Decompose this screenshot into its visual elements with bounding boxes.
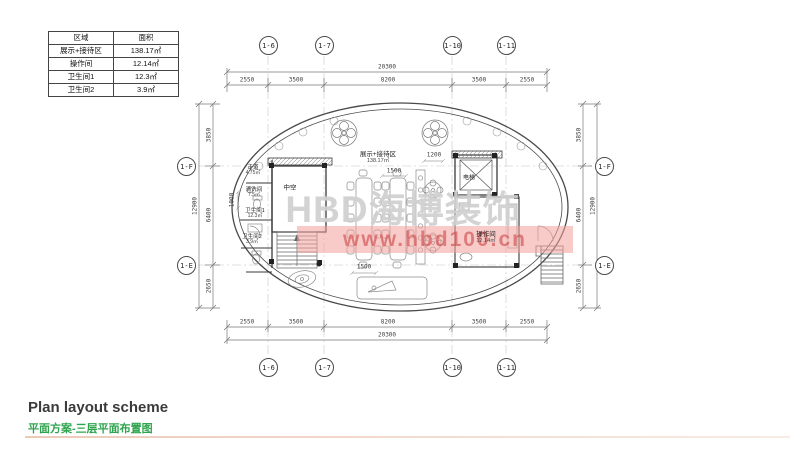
grid-bubble-bottom-1-11: 1-11 — [497, 358, 516, 377]
dim-label: 2550 — [240, 319, 254, 326]
round-sofa — [331, 120, 357, 146]
bubble-label: 1-6 — [262, 364, 275, 372]
dim-label: 8200 — [381, 319, 395, 326]
table-row: 卫生间1 12.3㎡ — [49, 71, 179, 84]
bubble-label: 1-10 — [444, 42, 461, 50]
bubble-label: 1-7 — [318, 42, 331, 50]
dim-label: 2550 — [240, 77, 254, 84]
dim-label: 6400 — [576, 208, 583, 222]
dim-label: 1000 — [229, 193, 236, 207]
bubble-label: 1-F — [598, 163, 611, 171]
room-area: 3.9㎡ — [242, 240, 262, 246]
room-name: 电梯 — [463, 176, 475, 183]
room-label-elevator: 电梯 — [463, 176, 475, 183]
grid-bubble-top-1-7: 1-7 — [315, 36, 334, 55]
dim-label-total: 12900 — [192, 197, 199, 215]
header-area: 面积 — [114, 32, 179, 45]
grid-bubble-bottom-1-7: 1-7 — [315, 358, 334, 377]
dim-label: 3850 — [206, 128, 213, 142]
grid-bubble-top-1-10: 1-10 — [443, 36, 462, 55]
watermark-brand: HBD海博装饰 — [285, 179, 520, 233]
table-row: 展示+接待区 138.17㎡ — [49, 45, 179, 58]
dim-label-total: 20300 — [378, 332, 396, 339]
room-area: 4.75㎡ — [246, 171, 261, 177]
bubble-label: 1-10 — [444, 364, 461, 372]
row-name: 卫生间1 — [49, 71, 114, 84]
table-row: 操作间 12.14㎡ — [49, 58, 179, 71]
dim-label: 2650 — [206, 279, 213, 293]
room-label-corridor: 走道 4.75㎡ — [246, 165, 261, 177]
dim-label: 3500 — [472, 319, 486, 326]
grid-bubble-top-1-6: 1-6 — [259, 36, 278, 55]
table-header-row: 区域 面积 — [49, 32, 179, 45]
dim-label: 6400 — [206, 208, 213, 222]
room-name: 中空 — [284, 184, 297, 191]
dim-label: 3500 — [289, 77, 303, 84]
dim-label: 1500 — [387, 168, 401, 175]
row-area: 12.14㎡ — [114, 58, 179, 71]
dim-label: 2650 — [576, 279, 583, 293]
dim-label: 1200 — [427, 152, 441, 159]
room-label-toilet2: 卫生间2 3.9㎡ — [242, 234, 262, 246]
grid-bubble-bottom-1-10: 1-10 — [443, 358, 462, 377]
room-area: 12.3㎡ — [245, 214, 265, 220]
bubble-label: 1-11 — [498, 42, 515, 50]
grid-bubble-bottom-1-6: 1-6 — [259, 358, 278, 377]
grid-bubble-top-1-11: 1-11 — [497, 36, 516, 55]
dim-label-total: 20300 — [378, 64, 396, 71]
dim-label: 3850 — [576, 128, 583, 142]
area-summary-table: 区域 面积 展示+接待区 138.17㎡ 操作间 12.14㎡ 卫生间1 12.… — [48, 31, 179, 97]
row-area: 138.17㎡ — [114, 45, 179, 58]
grid-bubble-right-1-E: 1-E — [595, 256, 614, 275]
footer-divider — [25, 436, 790, 438]
row-name: 卫生间2 — [49, 84, 114, 97]
bubble-label: 1-6 — [262, 42, 275, 50]
bubble-label: 1-E — [598, 262, 611, 270]
grid-bubble-left-1-E: 1-E — [177, 256, 196, 275]
round-sofa — [422, 120, 448, 146]
room-label-void: 中空 — [284, 184, 297, 191]
dim-label: 2550 — [520, 77, 534, 84]
page-title-en: Plan layout scheme — [28, 399, 168, 416]
page-title-zh: 平面方案-三层平面布置图 — [28, 420, 153, 436]
room-area: 138.17㎡ — [360, 159, 396, 165]
dim-label: 1500 — [357, 264, 371, 271]
vanity-counter — [248, 224, 262, 232]
dim-label: 2550 — [520, 319, 534, 326]
dim-label: 3500 — [289, 319, 303, 326]
table-row: 卫生间2 3.9㎡ — [49, 84, 179, 97]
row-name: 展示+接待区 — [49, 45, 114, 58]
room-label-cleaning: 清洗间 7.5㎡ — [246, 187, 263, 199]
dim-label-total: 12900 — [590, 197, 597, 215]
room-label-operation: 操作间 12.14㎡ — [476, 231, 496, 245]
dim-label: 3500 — [472, 77, 486, 84]
room-label-toilet1: 卫生间1 12.3㎡ — [245, 208, 265, 220]
slide-canvas: www.hbd100.cn HBD海博装饰 区域 面积 展示+接待区 138.1… — [0, 0, 800, 450]
room-area: 12.14㎡ — [476, 239, 496, 245]
grid-bubble-left-1-F: 1-F — [177, 157, 196, 176]
row-area: 12.3㎡ — [114, 71, 179, 84]
op-room-fixture — [460, 253, 472, 261]
bubble-label: 1-E — [180, 262, 193, 270]
bubble-label: 1-7 — [318, 364, 331, 372]
grid-bubble-right-1-F: 1-F — [595, 157, 614, 176]
bubble-label: 1-F — [180, 163, 193, 171]
bubble-label: 1-11 — [498, 364, 515, 372]
row-name: 操作间 — [49, 58, 114, 71]
floor-sign — [357, 277, 427, 299]
room-area: 7.5㎡ — [246, 193, 263, 199]
dim-label: 8200 — [381, 77, 395, 84]
header-region: 区域 — [49, 32, 114, 45]
room-label-exhibition: 展示+接待区 138.17㎡ — [360, 151, 396, 165]
row-area: 3.9㎡ — [114, 84, 179, 97]
